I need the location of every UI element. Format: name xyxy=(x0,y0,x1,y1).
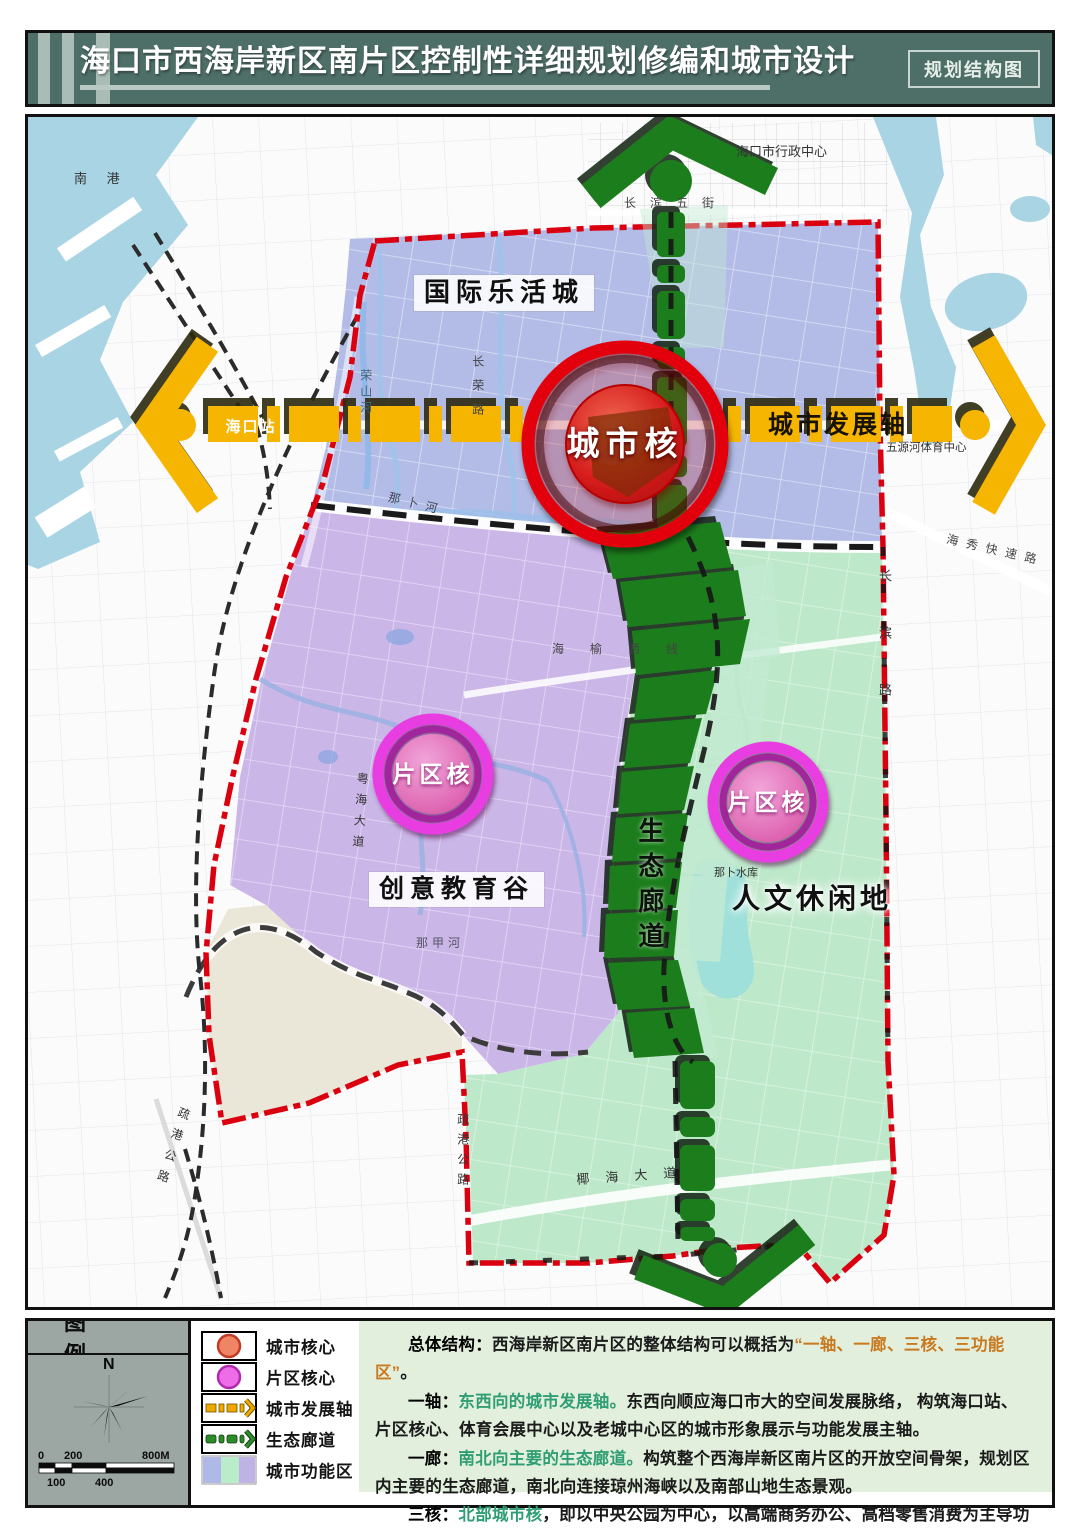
legend-panel: 图例 N 0 200 800M xyxy=(28,1321,191,1505)
header: 海口市西海岸新区南片区控制性详细规划修编和城市设计 规划结构图 xyxy=(25,30,1055,107)
planning-map: 国际乐活城 城市核 城市发展轴 片区核 片区核 创意教育谷 生态廊道 人文休闲地… xyxy=(25,114,1055,1310)
legend-title: 图例 xyxy=(28,1321,188,1355)
label-district-core-right: 片区核 xyxy=(728,789,809,815)
legend-item-label: 城市发展轴 xyxy=(266,1396,354,1420)
legend: 图例 N 0 200 800M xyxy=(25,1318,1055,1508)
label-haikou-station: 海口站 xyxy=(225,418,276,435)
label-creative-valley: 创意教育谷 xyxy=(369,872,544,907)
label-changbin-road: 长滨路 xyxy=(876,569,891,740)
description-paragraph: 一廊：南北向主要的生态廊道。构筑整个西海岸新区南片区的开放空间骨架，规划区内主要… xyxy=(375,1445,1032,1502)
title-underline xyxy=(80,85,770,90)
dev-axis-icon xyxy=(201,1393,257,1423)
description-paragraph: 三核：北部城市核，即以中央公园为中心，以高端商务办公、高档零售消费为主导功能的城… xyxy=(375,1501,1032,1529)
label-haiyu-west-line: 海榆西线 xyxy=(552,643,704,657)
legend-item-label: 片区核心 xyxy=(266,1365,336,1389)
drawing-type-badge: 规划结构图 xyxy=(908,50,1040,88)
svg-text:0: 0 xyxy=(38,1450,44,1462)
city-core-icon xyxy=(201,1331,257,1361)
legend-item-label: 城市核心 xyxy=(266,1334,336,1358)
scale-bar: 0 200 800M 100 400 xyxy=(37,1449,179,1493)
description-paragraph: 一轴：东西向的城市发展轴。东西向顺应海口市大的空间发展脉络， 构筑海口站、片区核… xyxy=(375,1388,1032,1445)
legend-item-eco-corridor: 生态廊道 xyxy=(201,1423,359,1454)
planning-poster: 海口市西海岸新区南片区控制性详细规划修编和城市设计 规划结构图 xyxy=(0,0,1080,1529)
legend-item-functional-zones: 城市功能区 xyxy=(201,1454,359,1485)
functional-zones-icon xyxy=(201,1455,257,1485)
svg-text:100: 100 xyxy=(47,1477,65,1489)
label-nabu-reservoir: 那卜水库 xyxy=(714,867,758,880)
label-changrong-road: 长荣路 xyxy=(470,355,484,427)
label-lohas-city: 国际乐活城 xyxy=(414,275,594,311)
svg-text:200: 200 xyxy=(64,1450,82,1462)
label-district-core-left: 片区核 xyxy=(393,761,474,787)
legend-item-city-core: 城市核心 xyxy=(201,1330,359,1361)
label-eco-corridor: 生态廊道 xyxy=(634,817,664,957)
page-title: 海口市西海岸新区南片区控制性详细规划修编和城市设计 xyxy=(80,47,855,77)
eco-corridor-icon xyxy=(201,1424,257,1454)
label-admin-center: 海口市行政中心 xyxy=(736,145,827,160)
label-changbin-5th-street: 长滨五街 xyxy=(624,197,728,211)
legend-item-dev-axis: 城市发展轴 xyxy=(201,1392,359,1423)
svg-text:N: N xyxy=(103,1356,115,1373)
legend-item-label: 生态廊道 xyxy=(266,1427,336,1451)
district-core-icon xyxy=(201,1362,257,1392)
structure-description: 总体结构：西海岸新区南片区的整体结构可以概括为“一轴、一廊、三核、三功能区”。 … xyxy=(359,1321,1052,1492)
label-wuyuanhe-sports-center: 五源河体育中心 xyxy=(886,442,967,455)
legend-item-district-core: 片区核心 xyxy=(201,1361,359,1392)
label-najia-river: 那甲河 xyxy=(416,937,464,951)
legend-items: 城市核心 片区核心 城市发展轴 xyxy=(191,1321,359,1505)
label-rongshan-river: 荣山河 xyxy=(358,369,372,417)
label-dev-axis: 城市发展轴 xyxy=(768,411,908,440)
label-south-port: 南 港 xyxy=(74,172,128,187)
svg-text:800M: 800M xyxy=(142,1450,170,1462)
compass-icon: N xyxy=(60,1355,156,1447)
label-city-core: 城市核 xyxy=(567,425,684,463)
legend-item-label: 城市功能区 xyxy=(266,1458,354,1482)
description-paragraph: 总体结构：西海岸新区南片区的整体结构可以概括为“一轴、一廊、三核、三功能区”。 xyxy=(375,1331,1032,1388)
label-shugang-highway-east: 疏港公路 xyxy=(455,1113,469,1193)
svg-text:400: 400 xyxy=(95,1477,113,1489)
label-leisure-land: 人文休闲地 xyxy=(732,883,892,915)
